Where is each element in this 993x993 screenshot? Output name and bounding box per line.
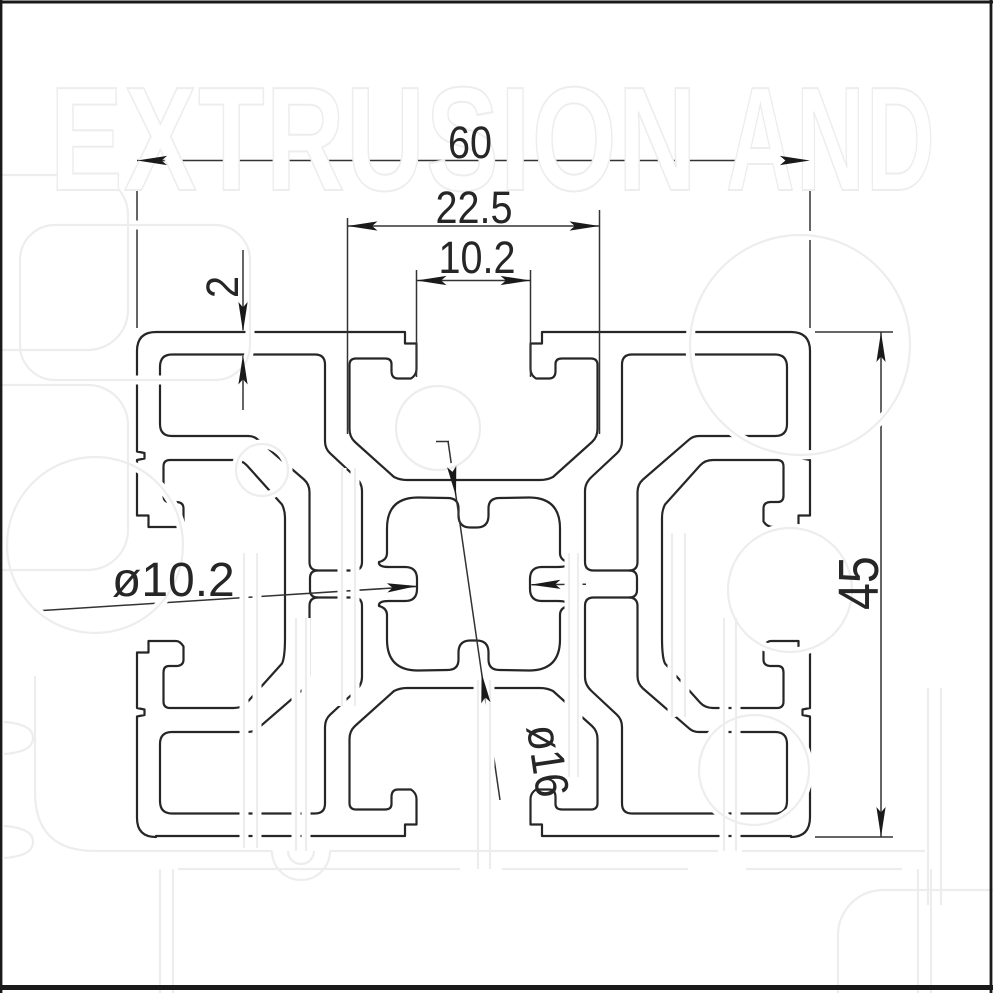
- svg-text:AND: AND: [726, 57, 936, 222]
- svg-text:ø16: ø16: [516, 721, 577, 801]
- svg-text:2: 2: [198, 276, 248, 298]
- svg-text:60: 60: [448, 118, 492, 168]
- svg-text:10.2: 10.2: [438, 233, 515, 283]
- svg-text:22.5: 22.5: [435, 183, 512, 233]
- svg-text:ø10.2: ø10.2: [112, 554, 235, 607]
- svg-text:45: 45: [827, 556, 891, 610]
- svg-text:EXTRUSION: EXTRUSION: [50, 57, 698, 222]
